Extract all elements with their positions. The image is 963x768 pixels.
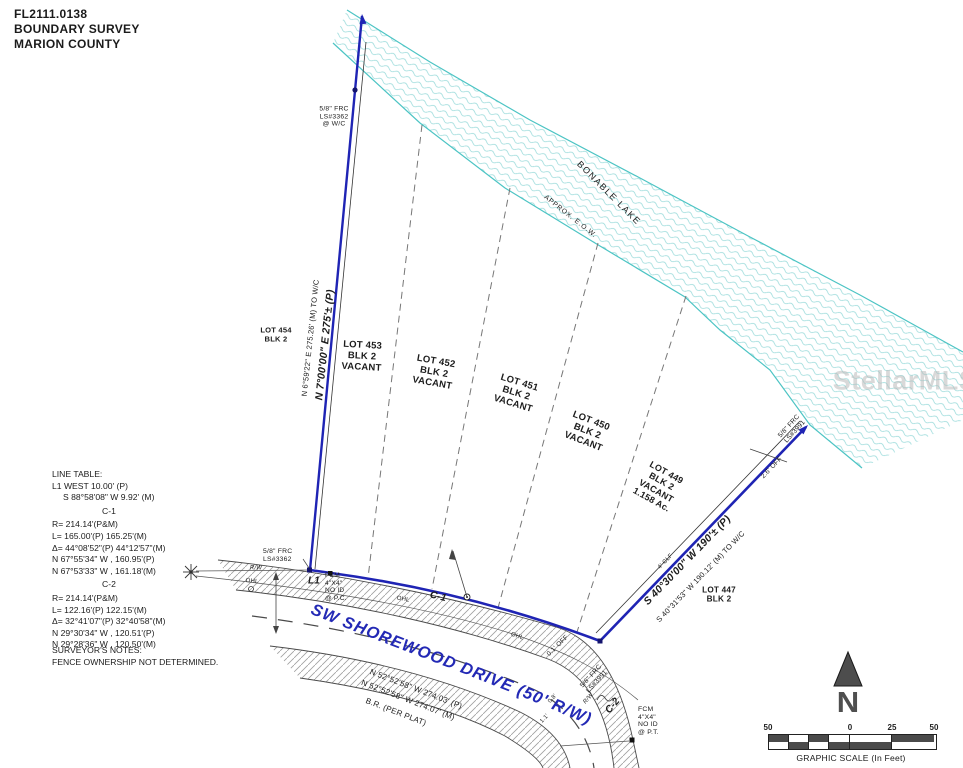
frc-bl-leader bbox=[303, 559, 309, 568]
scale-caption: GRAPHIC SCALE (In Feet) bbox=[751, 754, 951, 764]
lot-453-label: LOT 453 BLK 2 VACANT bbox=[341, 340, 383, 375]
line-table-row: L= 122.16'(P) 122.15'(M) bbox=[52, 605, 262, 617]
north-letter: N bbox=[837, 686, 859, 719]
surveyor-notes-body: FENCE OWNERSHIP NOT DETERMINED. bbox=[52, 657, 218, 669]
monument-fcm-pt bbox=[630, 738, 635, 743]
fcm-pt-label: FCM 4"X4" NO ID @ P.T. bbox=[638, 706, 659, 737]
line-table-row: S 88°58'08" W 9.92' (M) bbox=[52, 492, 262, 504]
survey-sheet: SW SHOREWOOD DRIVE (50' R/W) FL2111.0138… bbox=[0, 0, 963, 768]
line-table-row: C-1 bbox=[52, 506, 262, 518]
surveyor-notes-title: SURVEYOR'S NOTES: bbox=[52, 645, 218, 657]
line-table-row: N 29°30'34" W , 120.51'(P) bbox=[52, 628, 262, 640]
line-table-title: LINE TABLE: bbox=[52, 469, 262, 481]
line-table-row: R= 214.14'(P&M) bbox=[52, 593, 262, 605]
scale-bar-top-row bbox=[769, 735, 936, 742]
survey-type: BOUNDARY SURVEY bbox=[14, 22, 140, 37]
line-table-row: N 67°55'34" W , 160.95'(P) bbox=[52, 554, 262, 566]
line-table-row: Δ= 32°41'07"(P) 32°40'58"(M) bbox=[52, 616, 262, 628]
lake-area bbox=[333, 10, 963, 468]
frc-bottom-left-label: 5/8" FRC LS#3362 bbox=[263, 548, 292, 563]
dim-arrow-bottom bbox=[273, 626, 279, 634]
line-table-row: R= 214.14'(P&M) bbox=[52, 519, 262, 531]
scale-label-50-left: 50 bbox=[764, 723, 773, 732]
county: MARION COUNTY bbox=[14, 37, 140, 52]
watermark: StellarMLS bbox=[833, 366, 963, 397]
lot-452-label: LOT 452 BLK 2 VACANT bbox=[411, 354, 456, 393]
project-number: FL2111.0138 bbox=[14, 7, 140, 22]
scale-label-0: 0 bbox=[848, 723, 852, 732]
monument-se-corner bbox=[598, 639, 603, 644]
lake-fill bbox=[333, 10, 963, 468]
title-block: FL2111.0138 BOUNDARY SURVEY MARION COUNT… bbox=[14, 7, 140, 52]
line-table-row: Δ= 44°08'52"(P) 44°12'57"(M) bbox=[52, 543, 262, 555]
curve-point-leader-arrow bbox=[449, 549, 456, 560]
fcm-pc-label: FCM 4"X4" NO ID @ P.C. bbox=[325, 572, 347, 602]
scale-label-50-right: 50 bbox=[930, 723, 939, 732]
monument-wc-point bbox=[352, 87, 357, 92]
line-table-row: N 67°53'33" W , 161.18'(M) bbox=[52, 566, 262, 578]
monument-sw-corner bbox=[307, 568, 312, 573]
line-table-row: L1 WEST 10.00' (P) bbox=[52, 481, 262, 493]
line-table-row: L= 165.00'(P) 165.25'(M) bbox=[52, 531, 262, 543]
scale-bar bbox=[768, 734, 937, 750]
scale-bar-bottom-row bbox=[769, 742, 936, 749]
north-arrow-icon bbox=[834, 652, 862, 686]
lake-upper-edge bbox=[347, 10, 963, 352]
scale-label-25: 25 bbox=[888, 723, 897, 732]
lot-454-label: LOT 454 BLK 2 bbox=[260, 326, 291, 343]
lot-447-label: LOT 447 BLK 2 bbox=[702, 586, 736, 605]
line-table: LINE TABLE: L1 WEST 10.00' (P) S 88°58'0… bbox=[52, 469, 262, 651]
surveyor-notes: SURVEYOR'S NOTES: FENCE OWNERSHIP NOT DE… bbox=[52, 645, 218, 668]
frc-top-left-label: 5/8" FRC LS#3362 @ W/C bbox=[319, 105, 348, 128]
l1-label: L1 bbox=[308, 575, 320, 586]
line-table-row: C-2 bbox=[52, 579, 262, 591]
fence-east-clf bbox=[596, 421, 800, 633]
